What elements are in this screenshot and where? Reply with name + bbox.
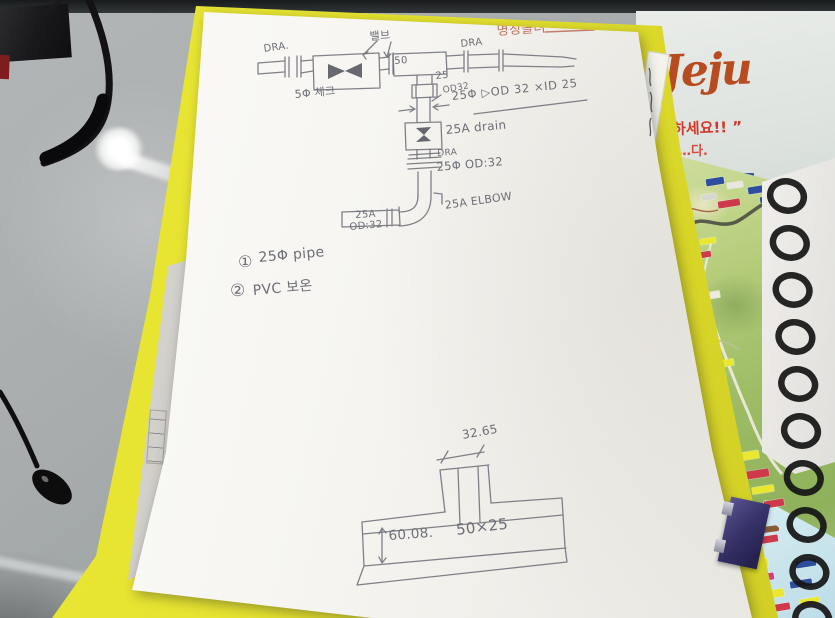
sketch-paper-wrap: 명칭올려 DRA. 밸브 5Φ 체크 50 DRA 25 OD32 25Φ ▷O…	[0, 0, 835, 618]
black-device	[0, 3, 72, 62]
clip-hinge	[721, 501, 733, 516]
sketch-paper: 명칭올려 DRA. 밸브 5Φ 체크 50 DRA 25 OD32 25Φ ▷O…	[0, 0, 835, 618]
label-valve: 밸브	[369, 27, 391, 44]
label-branch-size: 25	[435, 70, 449, 82]
red-note: 명칭올려	[496, 17, 546, 39]
dim-height: 60.08.	[388, 525, 434, 544]
base-section-sketch	[357, 445, 567, 585]
note-1-bullet: ①	[238, 252, 253, 271]
red-note-tail	[545, 30, 594, 32]
label-tee-size: 50	[394, 55, 408, 67]
label-dra-mid: DRA	[437, 148, 458, 159]
label-dra-right: DRA	[460, 37, 483, 50]
device-red-accent	[0, 55, 10, 79]
note-2-bullet: ②	[230, 281, 246, 301]
clip-hinge	[714, 538, 726, 553]
photo-desk-scene: Jeju 하세요!! ” …다.	[0, 0, 835, 618]
